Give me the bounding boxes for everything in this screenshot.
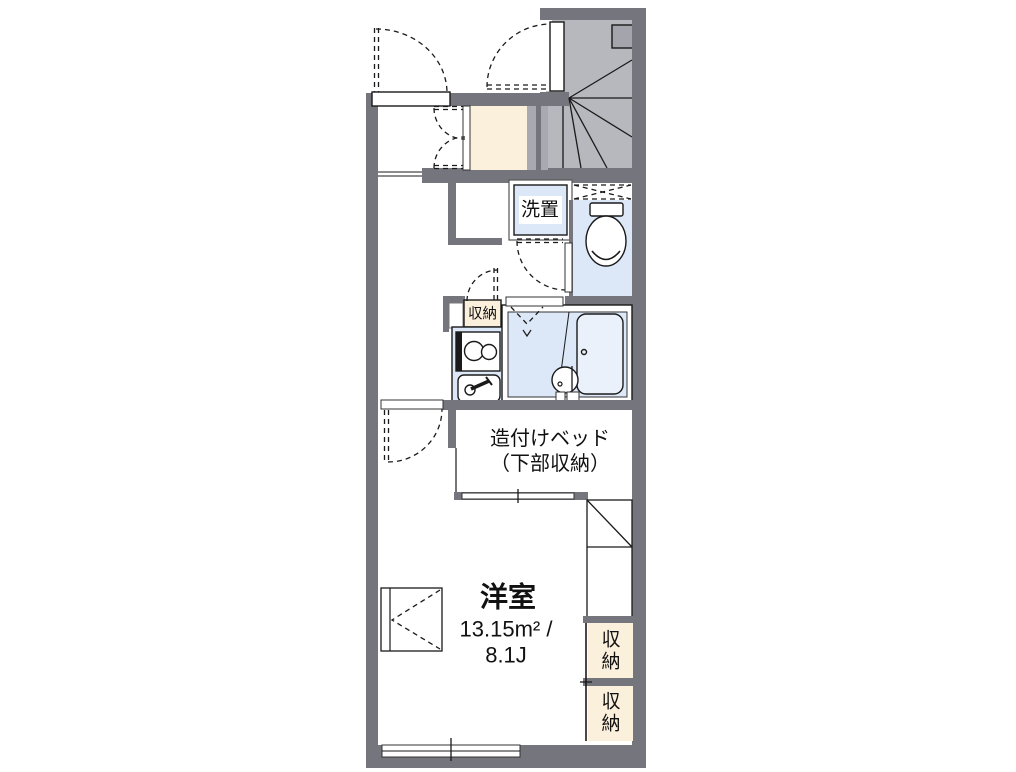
kitchen-left-wall [443, 303, 449, 332]
closet-upper-char-top: 収 [601, 629, 620, 651]
porch-door-bar [372, 92, 450, 106]
toilet-door-panel [565, 243, 572, 292]
stove-burner-left [465, 342, 484, 361]
basin-tap-left [556, 392, 565, 401]
staircase [540, 8, 646, 170]
closet-upper-char-bottom: 納 [601, 651, 620, 673]
closet-top-wall [583, 616, 634, 623]
stair-top-wall [540, 8, 646, 20]
bed-label-line2: （下部収納） [490, 452, 610, 475]
kitchen-top-wall [443, 296, 465, 303]
porch-door-open-dashed [375, 28, 379, 92]
bed-left-wall [448, 410, 456, 448]
closet-door-top-dashed [434, 107, 463, 110]
fridge-box [587, 500, 632, 618]
niche-left-wall [448, 183, 456, 245]
storage-closets: 収 納 収 納 [580, 616, 634, 741]
entrance-door-closed-dashed [487, 85, 549, 89]
niche-bottom-wall [448, 238, 502, 245]
closet-lower-char-top: 収 [601, 691, 620, 713]
genkan-floor [470, 106, 527, 170]
kitchen-sink [458, 375, 500, 402]
washer-label: 洗置 [521, 199, 559, 221]
kitchen-side-box [449, 303, 463, 328]
main-room: 洋室 13.15m² / 8.1J [381, 581, 553, 762]
toilet-door-arc [517, 241, 566, 290]
bath-basin [552, 367, 578, 393]
main-room-area-sqm: 13.15m² / [460, 617, 554, 642]
wall-cabinet-chevron [392, 590, 440, 649]
under-stair-wall-line [536, 106, 541, 170]
entrance-door-swing-arc [487, 24, 550, 87]
bathroom [502, 297, 632, 404]
bed-label-line1: 造付けベッド [490, 427, 610, 450]
built-in-bed-area: 造付けベッド （下部収納） [448, 410, 610, 503]
room-door-open-dashed [385, 410, 389, 461]
kitchen: 収納 [443, 268, 503, 404]
main-room-area-jo: 8.1J [485, 643, 527, 668]
closet-door-panels [463, 106, 470, 170]
partition-wall [443, 400, 634, 410]
left-wall [366, 93, 378, 768]
closet-lower-char-bottom: 納 [601, 713, 620, 735]
refrigerator-space [587, 500, 632, 618]
floor-plan: 洗置 収納 [0, 0, 1016, 772]
basin-tap-right [567, 392, 579, 401]
genkan-step-line [378, 172, 422, 176]
room-door-bar [381, 400, 443, 409]
bath-door-rail [506, 297, 563, 306]
storage-door-dashed [494, 268, 498, 300]
main-room-name: 洋室 [480, 581, 536, 613]
closet-door-arc-bottom [434, 137, 465, 168]
washer-space: 洗置 [448, 180, 572, 245]
toilet-tank [590, 203, 623, 216]
closet-door-arc-top [434, 108, 465, 139]
entrance-door-panel [550, 22, 564, 91]
fridge-diagonal [587, 500, 632, 547]
stove-burner-right [482, 345, 497, 360]
stove-edge [456, 332, 462, 371]
floor-plan-canvas: 洗置 収納 [0, 0, 1016, 772]
toilet-bowl [586, 216, 626, 266]
room-door-arc [388, 409, 442, 462]
right-wall [632, 8, 646, 768]
porch-door-swing-arc [376, 29, 447, 92]
kitchen-storage-label: 収納 [468, 306, 497, 323]
